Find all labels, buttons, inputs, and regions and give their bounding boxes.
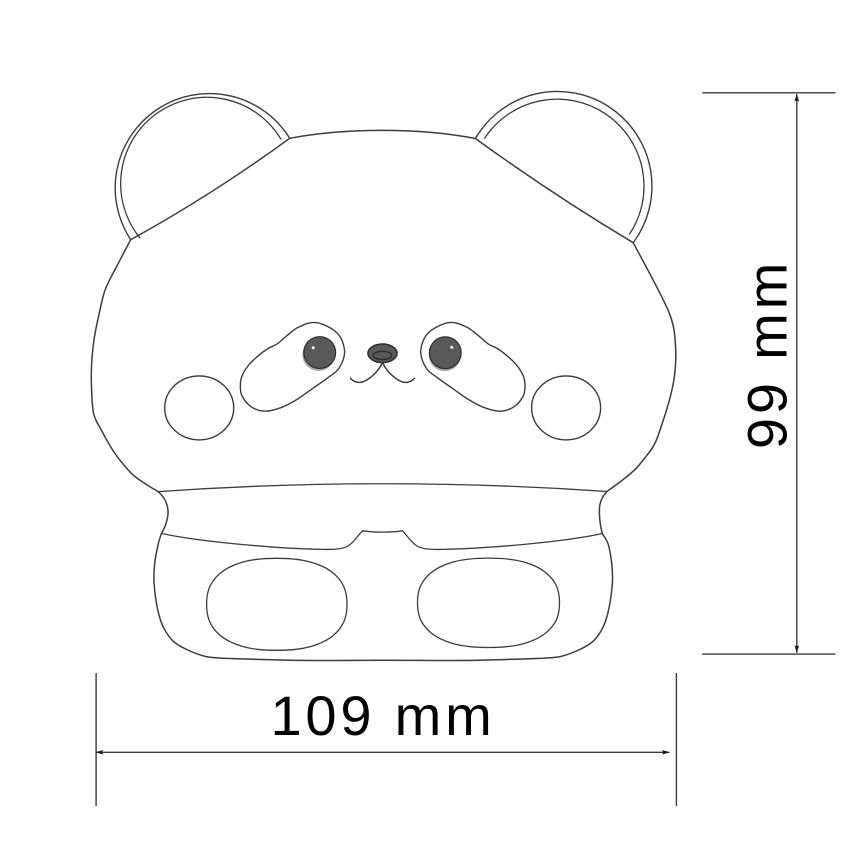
svg-text:109 mm: 109 mm: [270, 684, 495, 747]
svg-text:99 mm: 99 mm: [735, 259, 798, 449]
